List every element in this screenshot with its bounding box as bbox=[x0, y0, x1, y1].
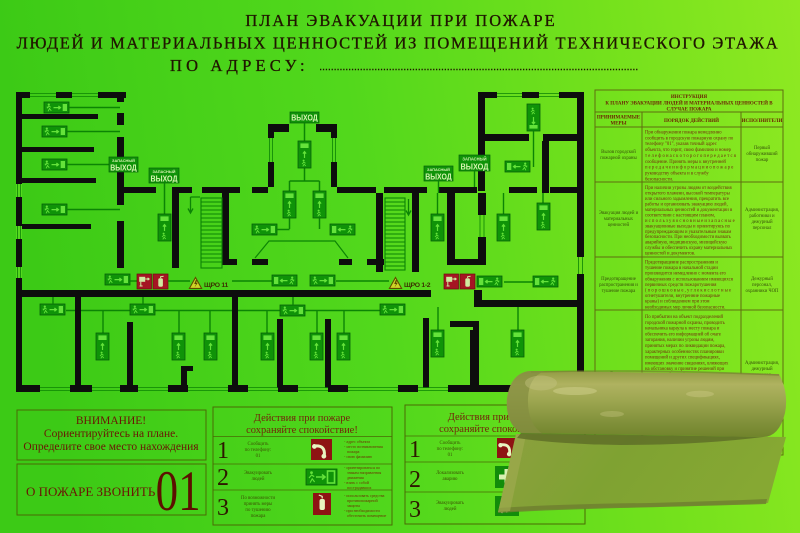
svg-text:ВЫХОД: ВЫХОД bbox=[425, 173, 452, 182]
svg-text:безопасности. При необходимос: безопасности. При необходимости вызвать bbox=[645, 235, 731, 240]
svg-text:01: 01 bbox=[448, 453, 453, 458]
svg-text:т е л е ф о н а с к о т о: т е л е ф о н а с к о т о р о г о п е р … bbox=[645, 154, 737, 159]
svg-text:тушение пожара: тушение пожара bbox=[602, 289, 636, 294]
svg-text:пострадавших: пострадавших bbox=[347, 485, 372, 490]
svg-text:2: 2 bbox=[217, 465, 229, 491]
svg-text:пожара: пожара bbox=[251, 514, 267, 519]
svg-text:ПОРЯДОК ДЕЙСТВИЙ: ПОРЯДОК ДЕЙСТВИЙ bbox=[664, 118, 719, 124]
svg-text:п е р е д а ч е и н ф о р м: п е р е д а ч е и н ф о р м а ц и и о п … bbox=[645, 166, 733, 171]
svg-text:К ПЛАНУ ЭВАКУАЦИИ ЛЮДЕЙ И МАТЕ: К ПЛАНУ ЭВАКУАЦИИ ЛЮДЕЙ И МАТЕРИАЛЬНЫХ Ц… bbox=[605, 101, 773, 107]
svg-text:пожарной охраны: пожарной охраны bbox=[600, 156, 637, 161]
svg-text:пожар: пожар bbox=[756, 158, 769, 163]
svg-text:Действия при пожаре: Действия при пожаре bbox=[254, 413, 351, 424]
svg-text:По возможности: По возможности bbox=[241, 496, 275, 501]
svg-text:01: 01 bbox=[156, 460, 201, 523]
svg-text:Сориентируйтесь на плане.: Сориентируйтесь на плане. bbox=[44, 428, 178, 440]
svg-text:Сообщить: Сообщить bbox=[440, 441, 462, 446]
svg-text:объекта, что горит, свою фамил: объекта, что горит, свою фамилию и номер bbox=[645, 148, 732, 153]
svg-text:ЗАПАСНЫЙ: ЗАПАСНЫЙ bbox=[112, 158, 135, 163]
svg-text:предупреждающим и указательн: предупреждающим и указательным знакам bbox=[645, 230, 731, 235]
svg-text:ВНИМАНИЕ!: ВНИМАНИЕ! bbox=[76, 415, 146, 427]
svg-text:соответствии с настоящим пл: соответствии с настоящим планом, bbox=[645, 213, 715, 218]
svg-text:2: 2 bbox=[409, 467, 421, 493]
svg-text:Администрация,: Администрация, bbox=[745, 361, 779, 366]
svg-text:ВЫХОД: ВЫХОД bbox=[291, 114, 318, 123]
svg-text:Эвакуировать: Эвакуировать bbox=[436, 501, 465, 506]
svg-text:ЗАПАСНЫЙ: ЗАПАСНЫЙ bbox=[153, 169, 176, 174]
svg-text:работы и организовать эвакуа: работы и организовать эвакуацию людей, bbox=[645, 203, 728, 208]
svg-text:Эвакуировать: Эвакуировать bbox=[244, 471, 273, 476]
svg-text:Определите свое место нахожде: Определите свое место нахождения bbox=[23, 441, 199, 453]
svg-text:Эвакуация людей и: Эвакуация людей и bbox=[599, 211, 639, 216]
svg-text:помещений и других специфик: помещений и других спецификациях, bbox=[645, 356, 720, 361]
svg-text:Предотвращение: Предотвращение bbox=[601, 277, 636, 282]
svg-text:обесточить помещение: обесточить помещение bbox=[347, 513, 386, 518]
svg-text:обнаружения с использованием и: обнаружения с использованием имеющихся bbox=[645, 277, 734, 282]
svg-text:дежурный: дежурный bbox=[751, 367, 772, 372]
svg-text:ценностей и документов.: ценностей и документов. bbox=[645, 252, 695, 257]
svg-text:ПРИНИМАЕМЫЕ: ПРИНИМАЕМЫЕ bbox=[597, 116, 641, 121]
svg-text:распространения и: распространения и bbox=[599, 283, 638, 288]
svg-text:обнаруживший: обнаруживший bbox=[746, 152, 778, 157]
svg-text:сообщение. Принять меры к: сообщение. Принять меры к внутренней bbox=[645, 160, 726, 165]
svg-text:начальника караула к месту: начальника караула к месту пожара и bbox=[645, 327, 720, 332]
svg-text:Дежурный: Дежурный bbox=[751, 277, 773, 282]
svg-text:людей: людей bbox=[444, 507, 457, 512]
svg-text:ЛЮДЕЙ И МАТЕРИАЛЬНЫХ ЦЕННОСТЕЙ: ЛЮДЕЙ И МАТЕРИАЛЬНЫХ ЦЕННОСТЕЙ ИЗ ПОМЕЩЕ… bbox=[17, 34, 780, 53]
svg-text:МЕРЫ: МЕРЫ bbox=[610, 122, 626, 127]
svg-text:3: 3 bbox=[409, 497, 421, 523]
svg-text:работники и: работники и bbox=[749, 214, 775, 219]
svg-text:материальных: материальных bbox=[604, 217, 634, 222]
svg-text:ПО АДРЕСУ:: ПО АДРЕСУ: bbox=[170, 56, 309, 75]
svg-text:по телефону:: по телефону: bbox=[245, 448, 272, 453]
svg-text:первичных средств пожаротуше: первичных средств пожаротушения bbox=[645, 283, 717, 288]
svg-text:службы и обеспечить охрану мат: службы и обеспечить охрану материальных bbox=[645, 246, 733, 251]
svg-text:При наличии угрозы людям от во: При наличии угрозы людям от воздействия bbox=[645, 186, 732, 191]
svg-text:ВЫХОД: ВЫХОД bbox=[110, 164, 137, 173]
svg-text:Первый: Первый bbox=[754, 146, 770, 151]
svg-text:материальных ценностей и докум: материальных ценностей и документации в bbox=[645, 208, 733, 213]
svg-text:При обнаружении пожара неме: При обнаружении пожара немедленно bbox=[645, 131, 722, 136]
svg-text:сохраняйте спокойствие!: сохраняйте спокойствие! bbox=[246, 425, 358, 436]
svg-text:персонал,: персонал, bbox=[752, 283, 772, 288]
svg-text:загорания, наличии угрозы л: загорания, наличии угрозы людям, bbox=[645, 338, 714, 343]
svg-text:телефону "01", указав точны: телефону "01", указав точный адрес bbox=[645, 142, 717, 147]
svg-text:( п о р о ш к о в ы е , у г: ( п о р о ш к о в ы е , у г л е к и с л … bbox=[645, 289, 731, 294]
svg-text:огнетушители, внутренние пож: огнетушители, внутренние пожарные bbox=[645, 294, 720, 299]
svg-text:3: 3 bbox=[217, 495, 229, 521]
svg-text:и с п о л ь з у я о с н о в: и с п о л ь з у я о с н о в н ы е и з а … bbox=[645, 219, 735, 224]
svg-text:ЗАПАСНЫЙ: ЗАПАСНЫЙ bbox=[427, 167, 450, 172]
svg-text:ценностей: ценностей bbox=[608, 223, 630, 228]
svg-text:ЩРО 1-2: ЩРО 1-2 bbox=[404, 282, 431, 289]
svg-text:производится немедленно с мом: производится немедленно с момента его bbox=[645, 272, 727, 277]
svg-text:городской пожарной охраны,: городской пожарной охраны, проводить bbox=[645, 321, 725, 326]
svg-text:ВЫХОД: ВЫХОД bbox=[461, 162, 489, 172]
svg-text:по телефону:: по телефону: bbox=[437, 447, 464, 452]
svg-text:Сообщить: Сообщить bbox=[248, 442, 270, 447]
svg-text:1: 1 bbox=[409, 437, 421, 463]
svg-text:аварийную, медицинскую, ми: аварийную, медицинскую, милицейскую bbox=[645, 241, 727, 246]
svg-text:людей: людей bbox=[252, 477, 265, 482]
svg-text:руководству объекта и в сл: руководству объекта и в службу bbox=[645, 172, 709, 177]
svg-text:или сильного задымления, прекр: или сильного задымления, прекратить все bbox=[645, 197, 729, 202]
svg-text:принятых мерах по ликвидации п: принятых мерах по ликвидации пожара, bbox=[645, 344, 725, 349]
svg-text:эвакуационные выходы и ориенти: эвакуационные выходы и ориентируясь по bbox=[645, 224, 731, 229]
svg-text:Предотвращение распространен: Предотвращение распространения и bbox=[645, 261, 718, 266]
svg-text:тушение пожара в начальной: тушение пожара в начальной стадии bbox=[645, 266, 718, 271]
svg-text:сообщить в городскую пожарную: сообщить в городскую пожарную охрану по bbox=[645, 136, 734, 141]
svg-text:аварию: аварию bbox=[442, 477, 457, 482]
svg-text:характерных особенностях пла: характерных особенностях планировки bbox=[645, 350, 724, 355]
svg-text:ПЛАН ЭВАКУАЦИИ ПРИ ПОЖАРЕ: ПЛАН ЭВАКУАЦИИ ПРИ ПОЖАРЕ bbox=[245, 11, 556, 30]
svg-text:Администрация,: Администрация, bbox=[745, 208, 779, 213]
svg-text:необходимых мер личной безопас: необходимых мер личной безопасности. bbox=[645, 305, 725, 310]
svg-text:О ПОЖАРЕ ЗВОНИТЬ: О ПОЖАРЕ ЗВОНИТЬ bbox=[26, 484, 156, 499]
svg-text:ВЫХОД: ВЫХОД bbox=[151, 175, 178, 184]
svg-text:имеющих значение сведениях, вл: имеющих значение сведениях, влияющих bbox=[645, 361, 729, 366]
svg-text:дежурный: дежурный bbox=[751, 220, 772, 225]
svg-text:открытого пламени, высокой т: открытого пламени, высокой температуры bbox=[645, 192, 731, 197]
svg-text:персонал: персонал bbox=[753, 226, 772, 231]
svg-text:СЛУЧАЕ ПОЖАРА: СЛУЧАЕ ПОЖАРА bbox=[667, 108, 712, 113]
svg-text:По прибытии на объект подр: По прибытии на объект подразделений bbox=[645, 315, 724, 320]
svg-text:принять меры: принять меры bbox=[244, 502, 273, 507]
svg-text:- свою фамилию: - свою фамилию bbox=[344, 454, 372, 459]
svg-text:обеспечить его информацией: обеспечить его информацией об очаге bbox=[645, 332, 721, 337]
svg-text:01: 01 bbox=[256, 454, 261, 459]
svg-text:безопасности.: безопасности. bbox=[645, 177, 673, 182]
svg-text:Вызов городской: Вызов городской bbox=[601, 150, 636, 155]
svg-text:охранники ЧОП: охранники ЧОП bbox=[745, 289, 779, 294]
svg-text:ИСПОЛНИТЕЛИ: ИСПОЛНИТЕЛИ bbox=[742, 119, 783, 124]
svg-text:ЩРО 11: ЩРО 11 bbox=[204, 282, 228, 289]
svg-text:1: 1 bbox=[217, 438, 229, 464]
svg-text:по тушению: по тушению bbox=[245, 508, 271, 513]
svg-text:краны) и соблюдением при э: краны) и соблюдением при этом bbox=[645, 300, 710, 305]
svg-text:Локализовать: Локализовать bbox=[436, 471, 464, 476]
svg-text:ИНСТРУКЦИЯ: ИНСТРУКЦИЯ bbox=[671, 95, 708, 100]
